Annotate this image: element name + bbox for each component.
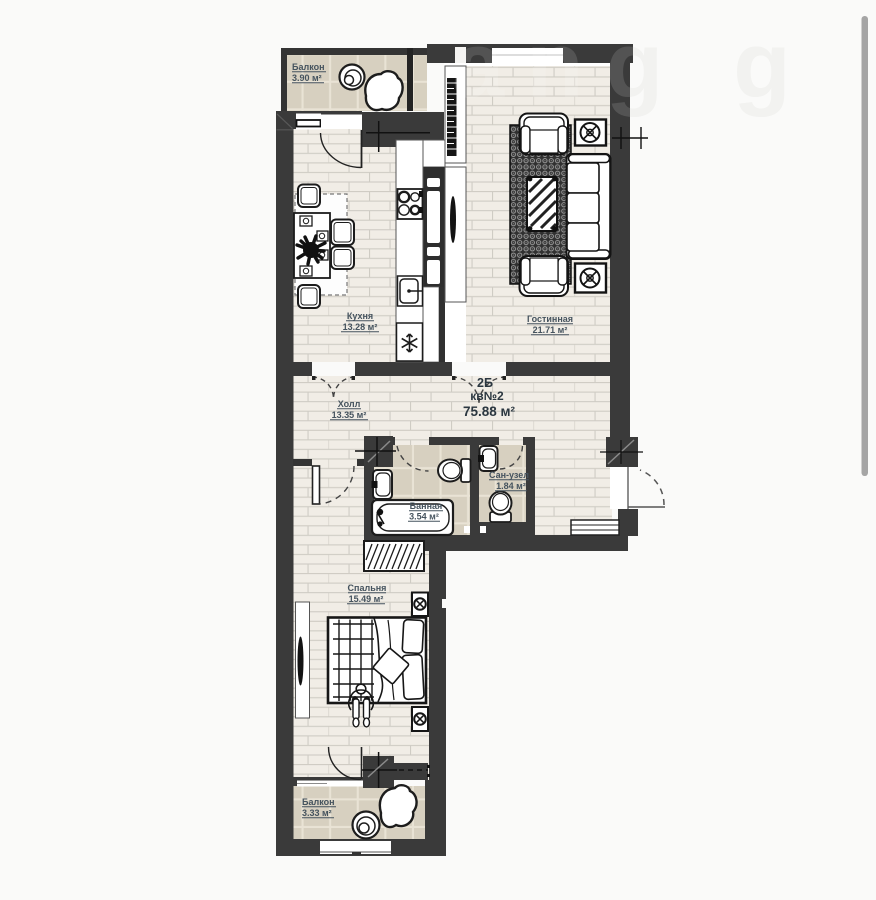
svg-text:Кухня: Кухня [347, 311, 373, 321]
svg-text:Ванная: Ванная [410, 501, 443, 511]
svg-text:Балкон: Балкон [302, 797, 335, 807]
svg-text:75.88 м²: 75.88 м² [463, 404, 516, 419]
svg-text:3.33 м²: 3.33 м² [302, 808, 332, 818]
svg-text:кв№2: кв№2 [470, 389, 504, 403]
svg-text:2Б: 2Б [477, 376, 493, 390]
svg-text:Балкон: Балкон [292, 62, 325, 72]
svg-text:3.90 м²: 3.90 м² [292, 73, 322, 83]
svg-text:ang g: ang g [452, 12, 813, 117]
svg-text:Сан-узел: Сан-узел [489, 470, 529, 480]
svg-text:3.54 м²: 3.54 м² [409, 512, 439, 522]
svg-text:13.28 м²: 13.28 м² [343, 322, 378, 332]
svg-text:Гостинная: Гостинная [527, 314, 573, 324]
svg-text:15.49 м²: 15.49 м² [349, 594, 384, 604]
svg-text:21.71 м²: 21.71 м² [533, 325, 568, 335]
svg-text:Холл: Холл [338, 399, 361, 409]
svg-text:13.35 м²: 13.35 м² [332, 410, 367, 420]
svg-text:Спальня: Спальня [348, 583, 387, 593]
svg-text:1.84 м²: 1.84 м² [496, 481, 526, 491]
